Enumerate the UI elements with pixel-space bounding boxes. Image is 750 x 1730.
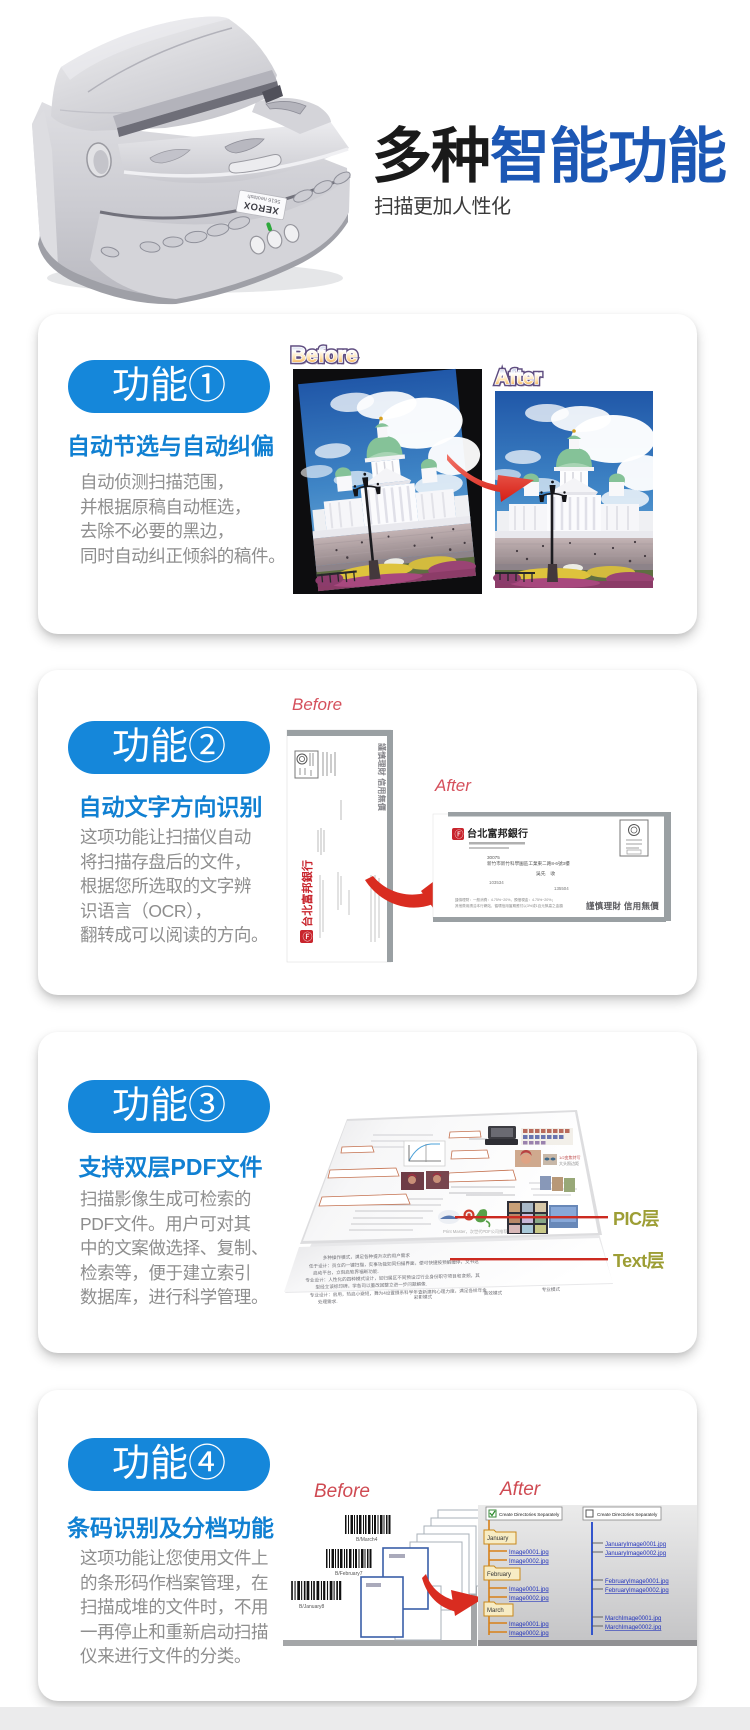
svg-text:Text层: Text层 (613, 1251, 665, 1271)
svg-text:Print Master，次世代PDF公司推荐: Print Master，次世代PDF公司推荐 (443, 1228, 507, 1235)
svg-text:1/2变焦特写: 1/2变焦特写 (559, 1154, 581, 1160)
svg-text:Image0002.jpg: Image0002.jpg (509, 1559, 549, 1565)
svg-text:JanuaryImage0002.jpg: JanuaryImage0002.jpg (605, 1551, 666, 1557)
svg-text:Image0001.jpg: Image0001.jpg (509, 1587, 549, 1593)
svg-text:Image0002.jpg: Image0002.jpg (509, 1596, 549, 1602)
svg-text:January: January (487, 1536, 508, 1542)
svg-text:Ⓕ: Ⓕ (455, 830, 464, 840)
svg-text:After: After (499, 1479, 541, 1500)
svg-text:其他費用請洽本行網站，循環信用當期應付以3%或1百元孰高之金: 其他費用請洽本行網站，循環信用當期應付以3%或1百元孰高之金額 (455, 903, 563, 908)
svg-text:103534: 103534 (489, 880, 504, 885)
svg-text:FebruaryImage0001.jpg: FebruaryImage0001.jpg (605, 1579, 669, 1585)
svg-text:JanuaryImage0001.jpg: JanuaryImage0001.jpg (605, 1542, 666, 1548)
svg-text:Create Directories Separately: Create Directories Separately (499, 1512, 560, 1517)
svg-text:高效模式: 高效模式 (484, 1289, 503, 1297)
svg-text:謹慎理財：一般消費：4.75%~20%，預借現金：4.75%: 謹慎理財：一般消費：4.75%~20%，預借現金：4.75%~20%； (455, 897, 555, 902)
svg-text:Image0001.jpg: Image0001.jpg (509, 1550, 549, 1556)
svg-text:謹慎理財 信用無價: 謹慎理財 信用無價 (377, 743, 387, 812)
svg-text:FebruaryImage0002.jpg: FebruaryImage0002.jpg (605, 1588, 669, 1594)
svg-text:30075: 30075 (487, 855, 500, 860)
svg-text:台北富邦銀行: 台北富邦銀行 (467, 827, 528, 840)
svg-text:专业模式: 专业模式 (542, 1286, 561, 1294)
svg-text:MarchImage0001.jpg: MarchImage0001.jpg (605, 1616, 661, 1622)
svg-text:Image0002.jpg: Image0002.jpg (509, 1631, 549, 1637)
svg-text:PIC层: PIC层 (613, 1209, 660, 1229)
svg-text:吳先 收: 吳先 收 (536, 870, 555, 877)
svg-text:Before: Before (292, 695, 342, 714)
svg-text:台北富邦銀行: 台北富邦銀行 (300, 860, 314, 927)
svg-text:March: March (487, 1608, 504, 1614)
svg-text:After: After (434, 776, 472, 795)
svg-text:彩影模式: 彩影模式 (414, 1293, 433, 1301)
svg-text:B/February7: B/February7 (335, 1571, 363, 1577)
svg-text:February: February (487, 1572, 511, 1578)
svg-text:处理需求.: 处理需求. (318, 1298, 338, 1306)
svg-text:B/January8: B/January8 (299, 1604, 325, 1610)
svg-text:大头照边距: 大头照边距 (559, 1160, 579, 1166)
svg-text:After: After (495, 367, 542, 389)
svg-text:B/March4: B/March4 (356, 1537, 378, 1543)
svg-text:新竹市新竹科學園區工業東二路8-6號3樓: 新竹市新竹科學園區工業東二路8-6號3樓 (487, 860, 570, 867)
svg-text:Before: Before (291, 344, 358, 367)
svg-text:Create Directories Separately: Create Directories Separately (597, 1512, 658, 1517)
svg-text:Ⓕ: Ⓕ (303, 932, 313, 944)
svg-text:Image0001.jpg: Image0001.jpg (509, 1622, 549, 1628)
svg-text:Before: Before (314, 1481, 370, 1502)
svg-text:MarchImage0002.jpg: MarchImage0002.jpg (605, 1625, 661, 1631)
svg-text:謹慎理財 信用無價: 謹慎理財 信用無價 (586, 901, 659, 911)
svg-text:135504: 135504 (554, 886, 569, 891)
